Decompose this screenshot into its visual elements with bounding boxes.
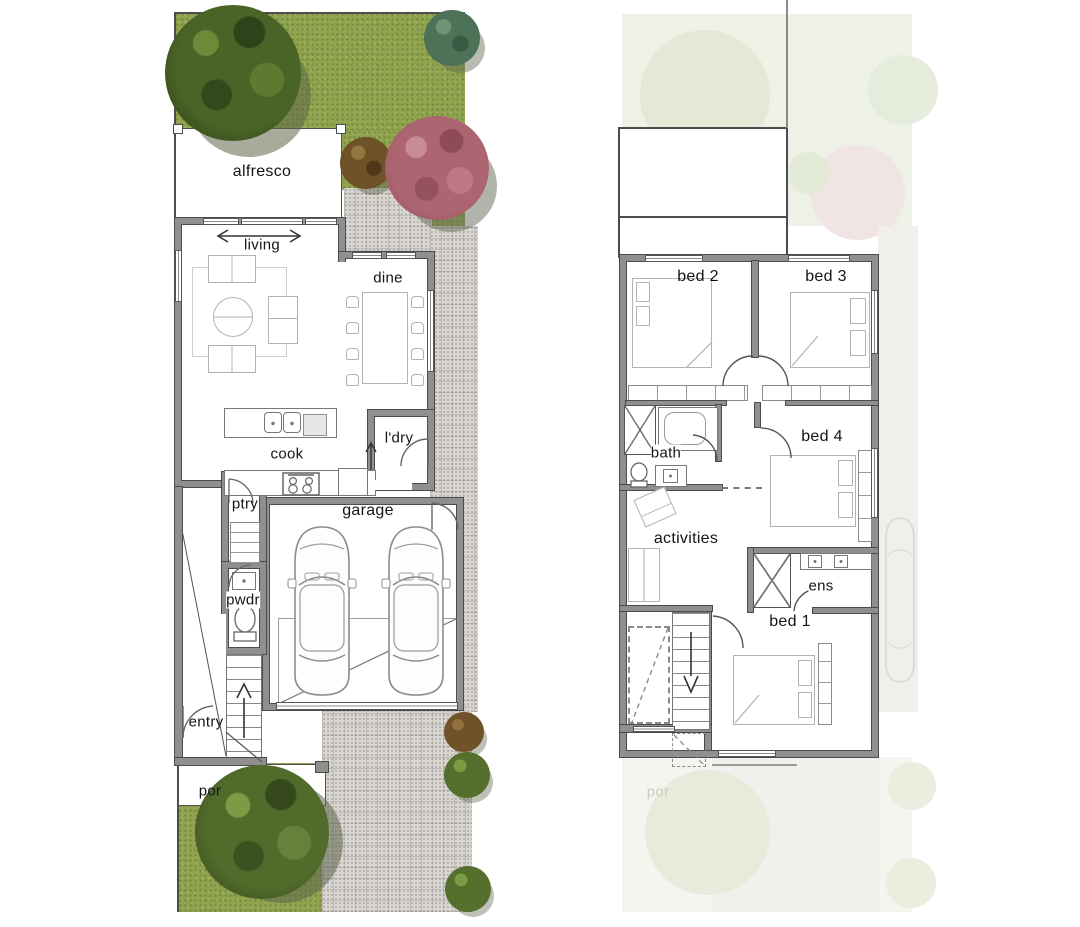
shower-ens [753, 553, 791, 608]
room-label-cook: cook [271, 446, 304, 463]
room-label-activities: activities [654, 530, 718, 548]
sofa-activities [628, 548, 660, 602]
sliding-door [241, 218, 303, 225]
sofa [208, 345, 256, 373]
sink [264, 412, 282, 433]
porch-post [316, 762, 328, 772]
dining-chair [411, 296, 424, 308]
coffee-table [213, 297, 253, 337]
window [352, 252, 382, 259]
car [381, 523, 451, 699]
sofa [208, 255, 256, 283]
room-label-alfresco: alfresco [233, 163, 291, 181]
wall-bed2-bed3 [752, 261, 758, 357]
room-label-dine: dine [373, 270, 403, 287]
pillow [798, 692, 812, 718]
room-label-ensuite: ens [808, 578, 833, 595]
ghost-car [882, 515, 918, 685]
robe-bed3 [762, 385, 872, 401]
ghost-tree [868, 55, 938, 125]
room-label-powder: pwdr [226, 592, 260, 609]
basin [663, 469, 678, 483]
wall-hall-bed4 [755, 403, 760, 427]
room-label-entry: entry [189, 714, 224, 731]
door-arc-bed1 [712, 615, 744, 649]
pillow [636, 282, 650, 302]
car [287, 523, 357, 699]
shrub-green-right [444, 752, 490, 798]
room-label-bed2: bed 2 [677, 268, 719, 286]
roof-line [618, 216, 788, 218]
bed-fold [792, 336, 818, 366]
wall-segment [175, 487, 182, 765]
entry-arrow-icon [364, 440, 378, 472]
dining-table [362, 292, 408, 384]
site-line [786, 0, 788, 128]
door-arc-bed4 [760, 427, 792, 459]
room-label-porch: por [199, 783, 222, 800]
wall-patch [372, 480, 412, 490]
room-label-bed4: bed 4 [801, 428, 843, 446]
dashed-wall [722, 487, 762, 489]
tree-pink [385, 116, 489, 220]
room-label-bed3: bed 3 [805, 268, 847, 286]
dining-chair [346, 296, 359, 308]
fridge-space [338, 468, 368, 496]
pantry-shelves [230, 522, 260, 564]
bed-fold [735, 695, 759, 723]
window [305, 218, 337, 225]
dining-chair [346, 322, 359, 334]
shrub-green-right [445, 866, 491, 912]
alfresco-post [336, 124, 346, 134]
dining-chair [346, 374, 359, 386]
robe-bed1 [818, 643, 832, 725]
pillow [838, 492, 853, 518]
door-arc-bath [692, 434, 718, 462]
garage-door [276, 702, 458, 710]
pillow [850, 298, 866, 324]
window [788, 255, 850, 262]
ghost-shrub [888, 762, 936, 810]
room-label-garage: garage [342, 502, 394, 520]
window [718, 750, 776, 757]
pillow [850, 330, 866, 356]
shrub-brown-right [444, 712, 484, 752]
bed-fold [686, 340, 712, 368]
dining-chair [346, 348, 359, 360]
stair-down-arrow-icon [683, 630, 699, 696]
room-label-bed1: bed 1 [769, 613, 811, 631]
window [427, 290, 434, 372]
window [645, 255, 703, 262]
robe-bed4 [858, 450, 872, 542]
wall-activities-stairs [620, 606, 712, 611]
dining-chair [411, 322, 424, 334]
window [203, 218, 239, 225]
pillow [798, 660, 812, 686]
ghost-shrub [886, 858, 936, 908]
door-arc [228, 564, 252, 588]
window [871, 290, 878, 354]
shrub-teal [424, 10, 480, 66]
sill-line [712, 764, 797, 766]
robe-bed2 [628, 385, 748, 401]
ghost-porch-label: por [647, 784, 670, 801]
room-label-pantry: ptry [232, 496, 258, 513]
dishwasher [303, 414, 327, 436]
basin [834, 555, 848, 568]
room-label-laundry: l'dry [385, 430, 414, 447]
toilet [628, 462, 650, 488]
dining-chair [411, 374, 424, 386]
floor-plan-canvas: alfresco living dine cook ptry l'dry gar… [0, 0, 1080, 927]
room-label-living: living [244, 237, 280, 254]
cooktop [282, 472, 320, 496]
ghost-shrub [788, 152, 830, 194]
room-label-bath: bath [651, 445, 681, 462]
wall-ens-bed1 [813, 608, 878, 613]
wall-patch [334, 262, 352, 477]
wall-segment [786, 401, 878, 405]
dining-chair [411, 348, 424, 360]
armchair [268, 296, 298, 344]
toilet [232, 604, 258, 644]
pillow [636, 306, 650, 326]
ghost-porch-diagonal [672, 733, 706, 767]
basin [808, 555, 822, 568]
alfresco-post [173, 124, 183, 134]
door-arc-bed3 [757, 355, 789, 387]
pillow [838, 460, 853, 486]
tree-large-green [165, 5, 301, 141]
stair-cut-line [226, 730, 262, 764]
roof-outline [618, 127, 788, 258]
void-diagonal [628, 626, 670, 724]
window [633, 726, 675, 732]
window [871, 448, 878, 518]
window [386, 252, 416, 259]
sink [283, 412, 301, 433]
door-arc-bed2 [722, 355, 754, 387]
window [175, 250, 182, 302]
